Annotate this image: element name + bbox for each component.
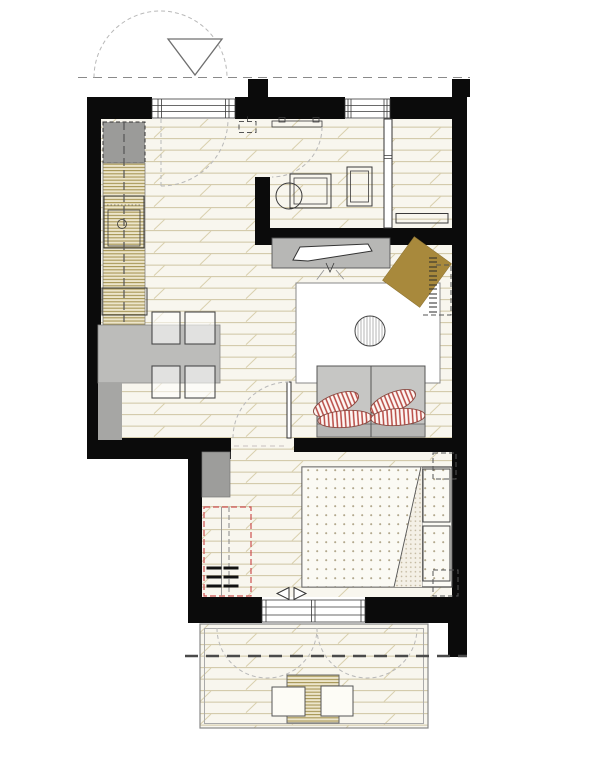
wall-bedroom-left [188, 452, 202, 600]
wall-bedroom-bottom-right [365, 597, 452, 623]
bathroom-window [345, 99, 390, 118]
wall-pier-top-right [452, 79, 470, 97]
balcony-chair [321, 686, 353, 716]
entrance-door-window [152, 99, 235, 118]
wall-right [452, 97, 467, 657]
pillow [423, 526, 450, 581]
cabinet [202, 452, 230, 497]
wall-top-middle [235, 97, 345, 119]
bedroom-sliding-window [262, 600, 365, 622]
floor-plan-page: Apartment floor plan - top view architec… [0, 0, 614, 768]
bench [98, 383, 122, 440]
double-bed [302, 467, 452, 587]
wall-right-extension [448, 597, 467, 657]
balcony-chair [272, 687, 305, 716]
kitchen [102, 122, 147, 325]
dining-chair [185, 366, 215, 398]
sofa [310, 366, 425, 437]
floor-plan-drawing: Apartment floor plan - top view architec… [0, 0, 614, 768]
entrance-arrow [168, 39, 222, 75]
pouf [355, 316, 385, 346]
wall-bedroom-bottom-left [188, 597, 262, 623]
pillow [423, 469, 450, 522]
wall-bathroom-left [255, 177, 270, 228]
balcony [185, 624, 467, 728]
dining-chair [152, 312, 180, 344]
wall-pier-top [248, 79, 268, 97]
door-leaf [287, 382, 291, 438]
wall-living-bedroom-divider [294, 438, 452, 452]
dining-chair [152, 366, 180, 398]
wall-top-right [390, 97, 452, 119]
partition-wall [384, 119, 392, 228]
dining-chair [185, 312, 215, 344]
